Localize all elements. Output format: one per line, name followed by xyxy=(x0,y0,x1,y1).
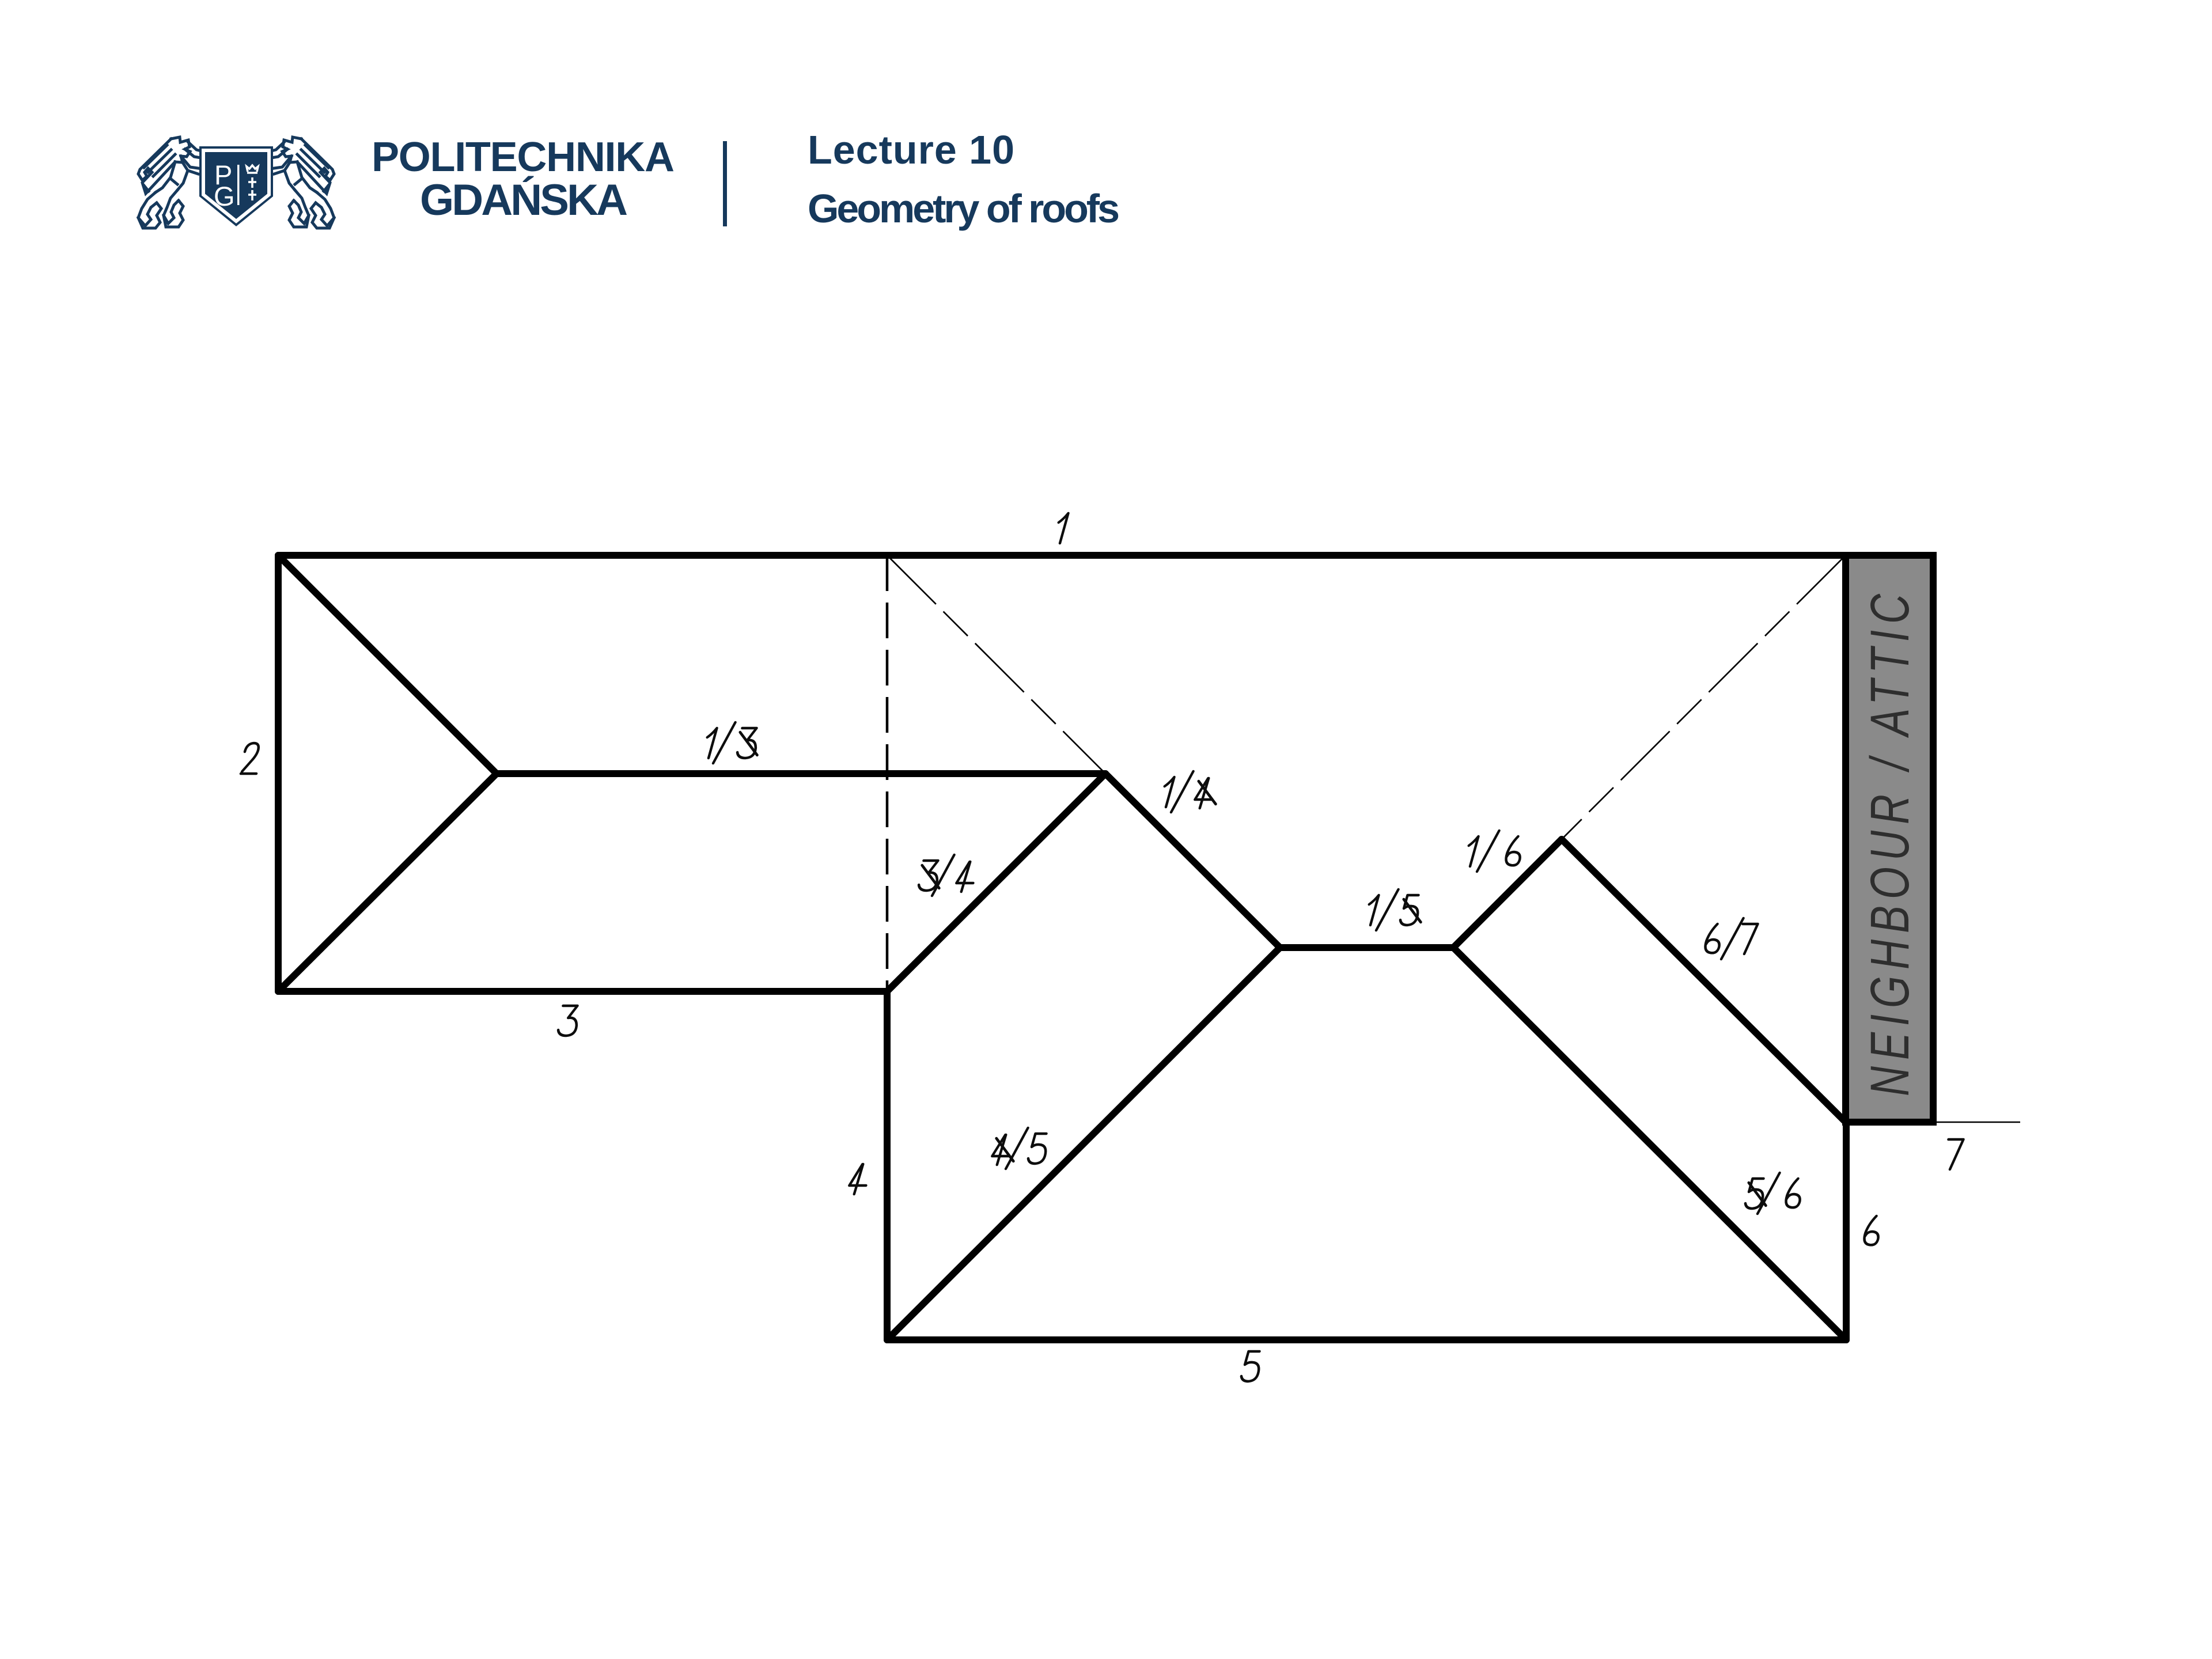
svg-text:POLITECHNIKA: POLITECHNIKA xyxy=(372,134,675,180)
svg-text:Lecture 10: Lecture 10 xyxy=(808,127,1014,172)
svg-text:GDAŃSKA: GDAŃSKA xyxy=(420,176,628,225)
svg-text:Geometry of roofs: Geometry of roofs xyxy=(808,186,1120,231)
svg-text:NEIGHBOUR / ATTIC: NEIGHBOUR / ATTIC xyxy=(1859,593,1920,1096)
svg-text:G: G xyxy=(214,181,235,211)
